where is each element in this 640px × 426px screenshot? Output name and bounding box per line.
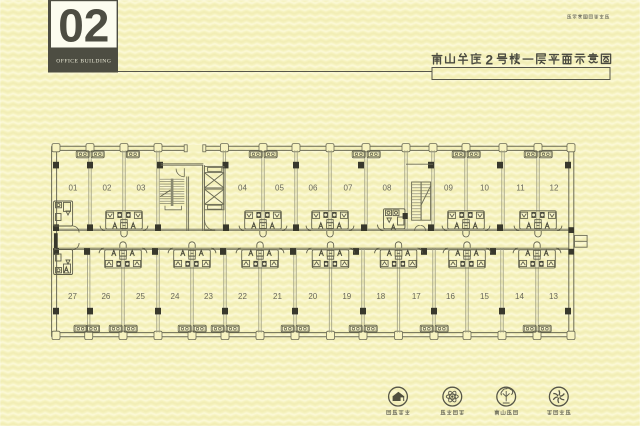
svg-text:12: 12 [550, 184, 559, 193]
svg-text:08: 08 [383, 184, 392, 193]
svg-text:15: 15 [480, 292, 489, 301]
svg-text:01: 01 [69, 184, 78, 193]
svg-text:17: 17 [412, 292, 421, 301]
svg-text:14: 14 [515, 292, 524, 301]
svg-text:21: 21 [273, 292, 282, 301]
svg-text:19: 19 [342, 292, 351, 301]
svg-text:07: 07 [344, 184, 353, 193]
svg-text:11: 11 [516, 184, 525, 193]
svg-text:OFFICE BUILDING: OFFICE BUILDING [56, 59, 111, 65]
svg-text:13: 13 [549, 292, 558, 301]
svg-text:2: 2 [486, 53, 494, 68]
svg-text:03: 03 [137, 184, 146, 193]
svg-text:10: 10 [480, 184, 489, 193]
svg-text:06: 06 [309, 184, 318, 193]
svg-text:24: 24 [171, 292, 180, 301]
svg-text:09: 09 [444, 184, 453, 193]
svg-text:05: 05 [275, 184, 284, 193]
svg-text:26: 26 [101, 292, 110, 301]
svg-text:22: 22 [238, 292, 247, 301]
svg-text:23: 23 [204, 292, 213, 301]
svg-text:02: 02 [58, 0, 109, 52]
svg-text:16: 16 [446, 292, 455, 301]
svg-text:27: 27 [68, 292, 77, 301]
svg-text:20: 20 [308, 292, 317, 301]
svg-text:18: 18 [376, 292, 385, 301]
svg-text:02: 02 [103, 184, 112, 193]
svg-text:04: 04 [238, 184, 247, 193]
svg-text:25: 25 [136, 292, 145, 301]
